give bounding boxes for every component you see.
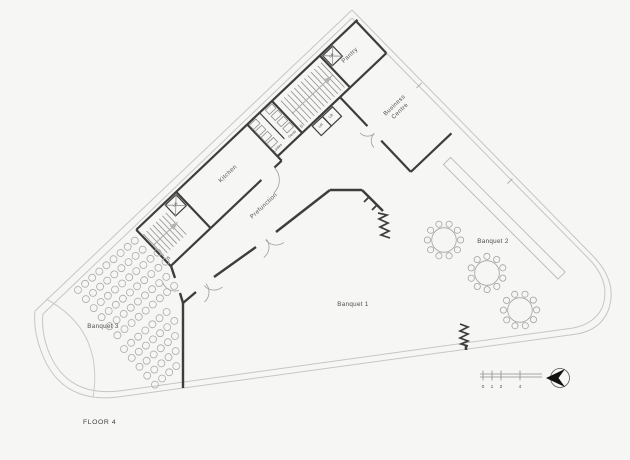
operable-wall-1 <box>378 213 390 238</box>
bc-door-arc-right <box>367 133 381 147</box>
prefunction-wall <box>183 190 383 303</box>
kitchen-room <box>176 124 294 241</box>
scale-label-2: 2 <box>500 384 503 390</box>
lift2-label: Lift <box>318 123 324 129</box>
banquet1-label: Banquet 1 <box>337 301 369 308</box>
scale-label-4: 4 <box>519 384 522 390</box>
scale-bar: 0 1 2 4 <box>480 371 542 391</box>
banquet2-label: Banquet 2 <box>477 238 509 245</box>
site-inner-line <box>43 18 605 392</box>
door-arc-1b <box>204 286 222 291</box>
banquet3-curved-wall <box>46 299 95 398</box>
service-lift1-label: Lift <box>328 52 334 58</box>
kitchen-label: Kitchen <box>218 164 239 184</box>
stair2-arrow <box>156 226 173 243</box>
north-arrow-icon <box>546 369 570 388</box>
floor-plan-svg: Pantry Kitchen Prefunction Business Cent… <box>0 0 630 460</box>
floor-title: FLOOR 4 <box>83 419 116 426</box>
lift1-label: Lift <box>328 113 334 119</box>
site-outer-line <box>35 10 612 398</box>
banquet-walls <box>163 190 468 388</box>
scale-label-0: 0 <box>482 384 485 390</box>
band-outer-wall <box>136 20 357 230</box>
kitchen-door-arc <box>261 168 286 193</box>
skylight-strip <box>443 157 565 279</box>
service-lift2-label: Lift <box>172 201 178 207</box>
banquet3-label: Banquet 3 <box>87 323 119 330</box>
scale-label-1: 1 <box>491 384 494 390</box>
site-boundary <box>35 10 612 398</box>
prefunction-label: Prefunction <box>250 192 279 220</box>
pantry-label: Pantry <box>341 47 359 65</box>
door-arc-2a <box>264 239 269 257</box>
bc-door-arc-left <box>360 126 374 140</box>
building-band: Pantry Kitchen Prefunction Business Cent… <box>136 18 512 391</box>
